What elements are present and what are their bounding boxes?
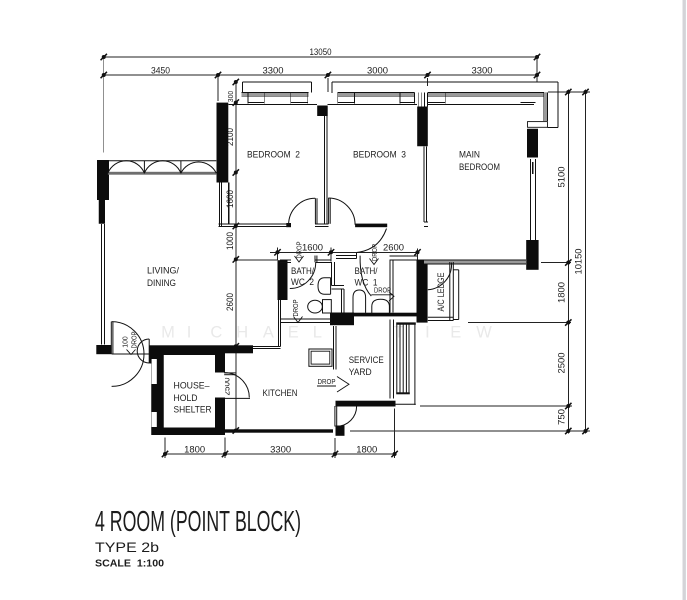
svg-text:I: I [425, 324, 430, 342]
svg-text:E: E [450, 324, 461, 342]
svg-text:1800: 1800 [557, 282, 567, 303]
svg-text:BATH/: BATH/ [291, 266, 314, 277]
svg-text:H: H [236, 324, 248, 342]
svg-text:KITCHEN: KITCHEN [263, 388, 298, 399]
svg-text:BEDROOM 3: BEDROOM 3 [353, 149, 406, 160]
svg-text:L: L [313, 324, 322, 342]
svg-text:1600: 1600 [225, 190, 235, 208]
svg-text:2500: 2500 [557, 353, 567, 374]
svg-text:4 ROOM (POINT BLOCK): 4 ROOM (POINT BLOCK) [95, 506, 301, 538]
svg-text:BEDROOM: BEDROOM [459, 162, 500, 173]
svg-text:BATH/: BATH/ [355, 266, 378, 277]
svg-text:DINING: DINING [147, 278, 176, 289]
svg-text:2600: 2600 [383, 242, 404, 252]
svg-text:1800: 1800 [184, 444, 205, 454]
svg-text:3300: 3300 [263, 66, 284, 76]
svg-text:13050: 13050 [310, 47, 332, 57]
svg-text:T: T [394, 324, 404, 342]
svg-text:DROP: DROP [372, 244, 379, 261]
svg-text:DROP: DROP [297, 241, 304, 258]
svg-text:A: A [263, 324, 274, 342]
svg-text:WC 1: WC 1 [355, 277, 378, 288]
svg-text:10150: 10150 [574, 249, 584, 275]
svg-text:HOUSE–: HOUSE– [174, 381, 211, 392]
svg-text:YARD: YARD [349, 367, 372, 378]
svg-text:300: 300 [226, 91, 235, 103]
svg-text:5100: 5100 [557, 167, 567, 188]
svg-text:1600: 1600 [302, 243, 323, 253]
svg-text:2600: 2600 [225, 293, 235, 311]
svg-text:3300: 3300 [270, 444, 291, 454]
svg-text:C: C [210, 324, 222, 342]
svg-text:BEDROOM 2: BEDROOM 2 [247, 149, 300, 160]
svg-text:DROP: DROP [374, 288, 391, 295]
svg-text:LIVING/: LIVING/ [147, 265, 179, 276]
svg-text:WC 2: WC 2 [291, 277, 314, 288]
svg-text:M: M [161, 324, 175, 342]
svg-text:E: E [288, 324, 299, 342]
svg-text:HOLD: HOLD [174, 393, 198, 404]
svg-text:W: W [476, 324, 492, 342]
svg-text:1800: 1800 [356, 444, 377, 454]
svg-text:MAIN: MAIN [459, 149, 480, 160]
svg-text:SHELTER: SHELTER [174, 405, 212, 416]
svg-text:SERVICE: SERVICE [349, 355, 384, 366]
svg-text:A/C LEDGE: A/C LEDGE [436, 273, 446, 312]
svg-text:1000: 1000 [225, 232, 235, 250]
svg-text:750: 750 [557, 409, 567, 425]
svg-text:3300: 3300 [472, 66, 493, 76]
svg-text:DROP: DROP [293, 299, 300, 316]
svg-text:DROP: DROP [318, 379, 336, 386]
svg-text:I: I [187, 324, 192, 342]
svg-text:TYPE 2b: TYPE 2b [95, 539, 159, 555]
svg-text:3450: 3450 [151, 66, 170, 76]
svg-text:SCALE 1:100: SCALE 1:100 [95, 558, 164, 570]
svg-text:3000: 3000 [367, 66, 388, 76]
svg-text:100: 100 [121, 336, 130, 348]
